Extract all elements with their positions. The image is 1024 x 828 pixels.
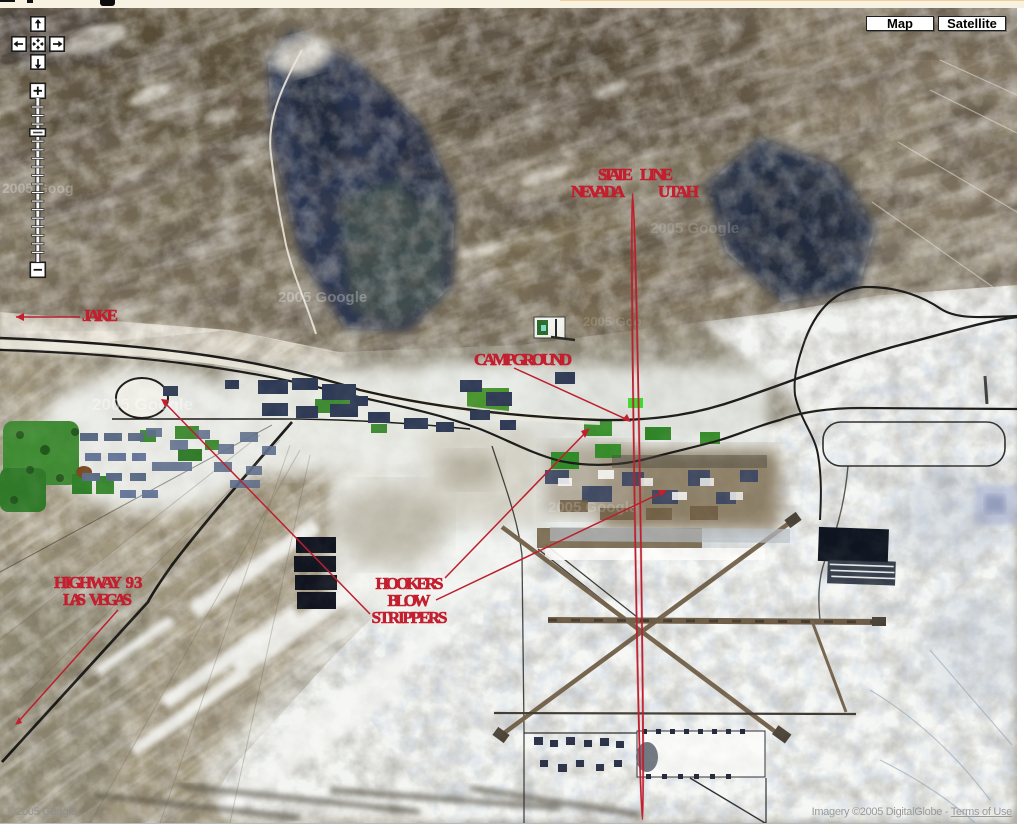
svg-text:STRIPPERS: STRIPPERS [372, 608, 448, 627]
svg-text:CAMPGROUND: CAMPGROUND [474, 350, 572, 369]
svg-text:2005 Google: 2005 Google [548, 499, 637, 516]
svg-text:LAS: LAS [63, 590, 86, 609]
svg-text:2005 Google: 2005 Google [278, 289, 367, 306]
svg-text:JAKE: JAKE [82, 306, 118, 325]
svg-text:VEGAS: VEGAS [89, 590, 132, 609]
svg-text:UTAH: UTAH [658, 182, 699, 201]
svg-text:2005 Google: 2005 Google [650, 220, 739, 237]
svg-text:NEVADA: NEVADA [571, 182, 626, 201]
svg-text:2005 Google: 2005 Google [92, 395, 193, 414]
